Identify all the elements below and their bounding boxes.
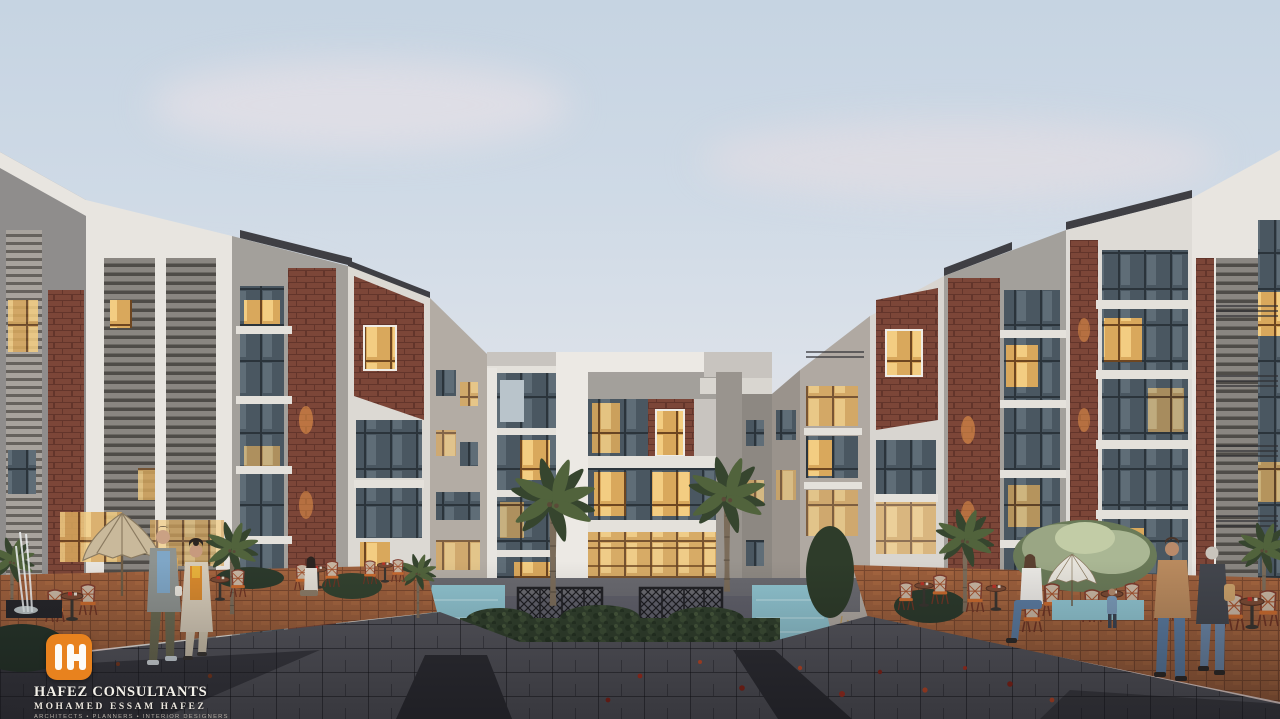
pool-right-terrace xyxy=(1052,600,1144,620)
company-name: HAFEZ CONSULTANTS xyxy=(34,684,229,701)
architectural-render: HAFEZ CONSULTANTS MOHAMED ESSAM HAFEZ AR… xyxy=(0,0,1280,719)
logo-watermark: HAFEZ CONSULTANTS MOHAMED ESSAM HAFEZ AR… xyxy=(34,634,229,719)
courtyard-illustration xyxy=(0,0,1280,719)
logo-monogram xyxy=(46,634,92,680)
monogram-bar xyxy=(55,644,62,670)
monogram-crossbar xyxy=(67,654,86,661)
conifer-bush xyxy=(806,526,854,618)
principal-name: MOHAMED ESSAM HAFEZ xyxy=(34,702,229,712)
tagline: ARCHITECTS • PLANNERS • INTERIOR DESIGNE… xyxy=(34,714,229,719)
